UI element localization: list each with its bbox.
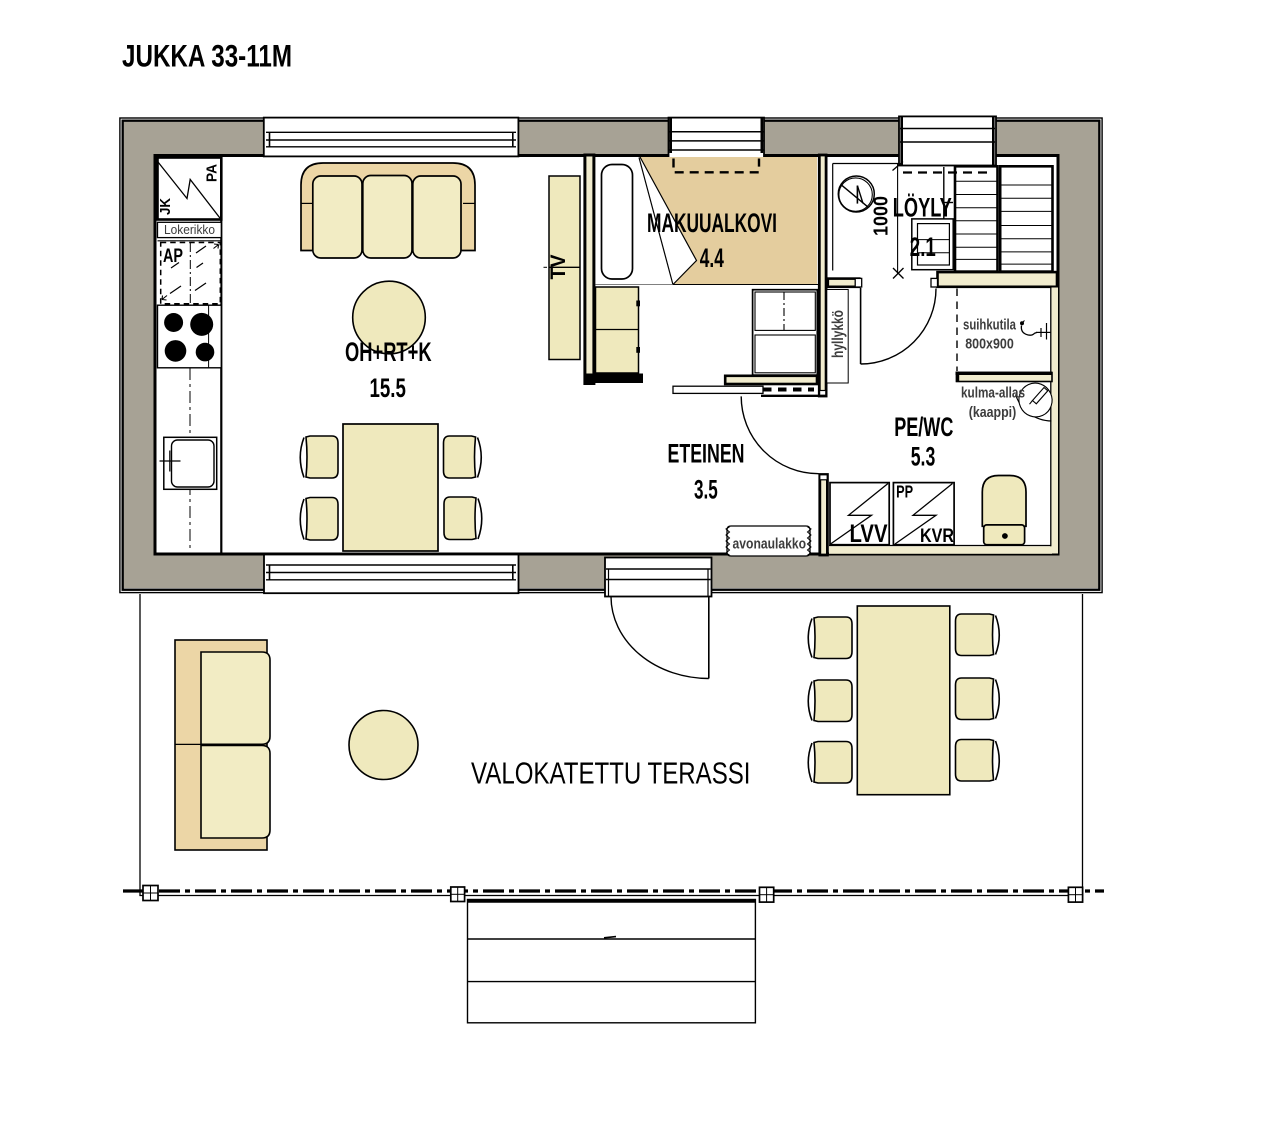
svg-text:5.3: 5.3 [911, 441, 936, 471]
svg-text:JUKKA 33-11M: JUKKA 33-11M [122, 37, 292, 73]
svg-text:AP: AP [163, 246, 183, 267]
svg-text:Lokerikko: Lokerikko [164, 223, 215, 237]
svg-text:PP: PP [896, 482, 913, 502]
svg-text:KVR: KVR [920, 526, 954, 547]
svg-text:15.5: 15.5 [370, 373, 406, 403]
svg-text:kulma-allas: kulma-allas [961, 385, 1025, 402]
svg-text:TV: TV [547, 255, 570, 280]
svg-text:800x900: 800x900 [965, 336, 1014, 353]
svg-text:4.4: 4.4 [700, 243, 724, 273]
svg-text:JK: JK [157, 198, 174, 215]
svg-text:(kaappi): (kaappi) [969, 404, 1017, 421]
svg-text:LVV: LVV [850, 520, 888, 548]
svg-text:LÖYLY: LÖYLY [893, 193, 952, 223]
svg-text:suihkutila: suihkutila [963, 317, 1016, 334]
svg-text:ETEINEN: ETEINEN [668, 439, 745, 469]
svg-text:avonaulakko: avonaulakko [733, 536, 807, 553]
svg-text:PA: PA [204, 164, 221, 182]
svg-text:2.1: 2.1 [910, 232, 936, 262]
svg-text:MAKUUALKOVI: MAKUUALKOVI [647, 208, 777, 238]
svg-text:hyllykkö: hyllykkö [830, 310, 847, 358]
svg-text:VALOKATETTU TERASSI: VALOKATETTU TERASSI [471, 756, 751, 791]
svg-text:1000: 1000 [871, 196, 893, 236]
svg-text:3.5: 3.5 [694, 474, 718, 504]
svg-text:PE/WC: PE/WC [894, 412, 953, 442]
svg-text:OH+RT+K: OH+RT+K [345, 337, 432, 367]
